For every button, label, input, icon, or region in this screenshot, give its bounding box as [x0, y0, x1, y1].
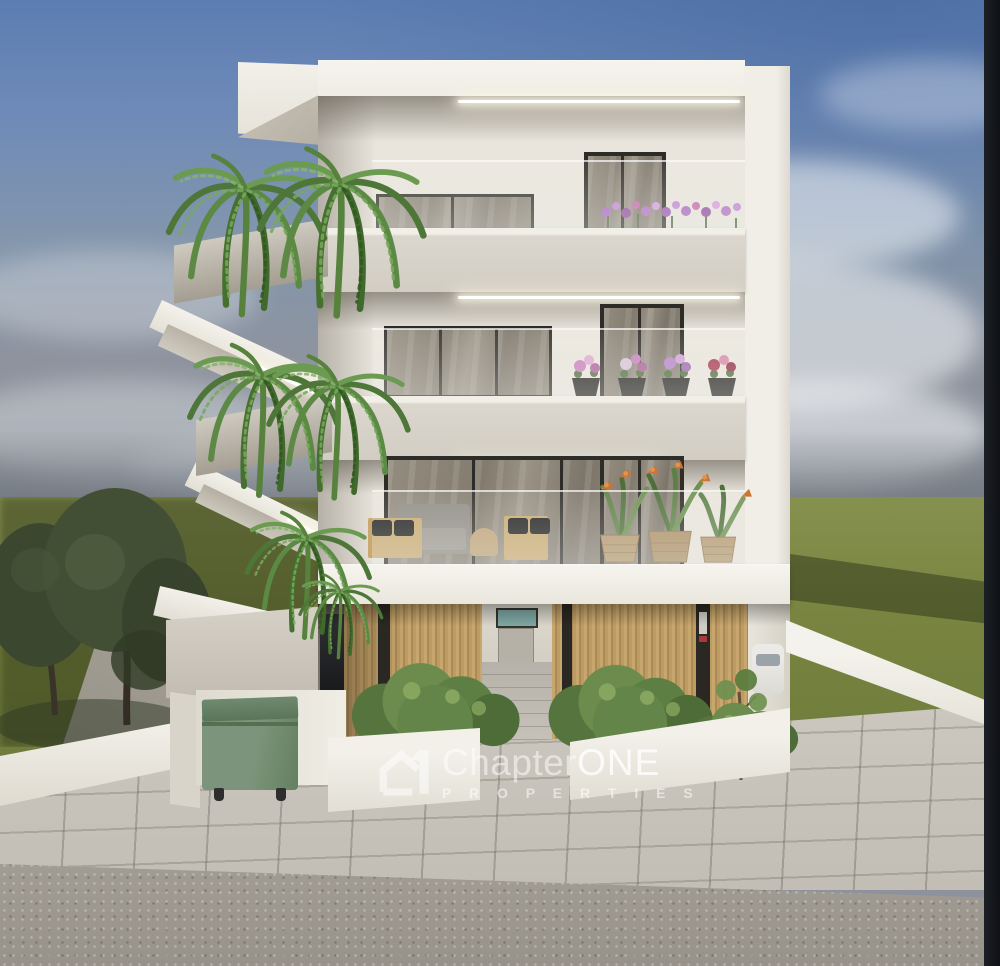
- hanging-fern: [252, 342, 422, 512]
- green-dumpster-body: [202, 716, 298, 790]
- watermark: ChapterONE P R O P E R T I E S: [376, 744, 696, 810]
- glass-balustrade: [372, 490, 745, 568]
- green-dumpster-lid: [202, 696, 299, 721]
- dumpster-wheel: [214, 788, 224, 801]
- architectural-render-scene: ChapterONE P R O P E R T I E S: [0, 0, 1000, 966]
- hanging-fern: [240, 132, 440, 332]
- glass-balustrade: [372, 328, 745, 398]
- led-strip: [458, 100, 740, 103]
- right-edge-bar: [984, 0, 1000, 966]
- brand-name: ChapterONE: [442, 744, 700, 782]
- brand-chapter: Chapter: [442, 742, 577, 783]
- brand-one: ONE: [577, 742, 660, 783]
- brand-tagline: P R O P E R T I E S: [442, 785, 700, 801]
- dumpster-wheel: [276, 788, 286, 801]
- watermark-text: ChapterONE P R O P E R T I E S: [442, 744, 700, 801]
- facade-right-column: [744, 66, 790, 606]
- led-strip: [458, 296, 740, 299]
- dumpster-rail: [202, 722, 298, 726]
- car-tail-light: [699, 636, 707, 642]
- roof-fascia: [318, 60, 745, 97]
- house-number-one-logo-icon: [376, 746, 434, 798]
